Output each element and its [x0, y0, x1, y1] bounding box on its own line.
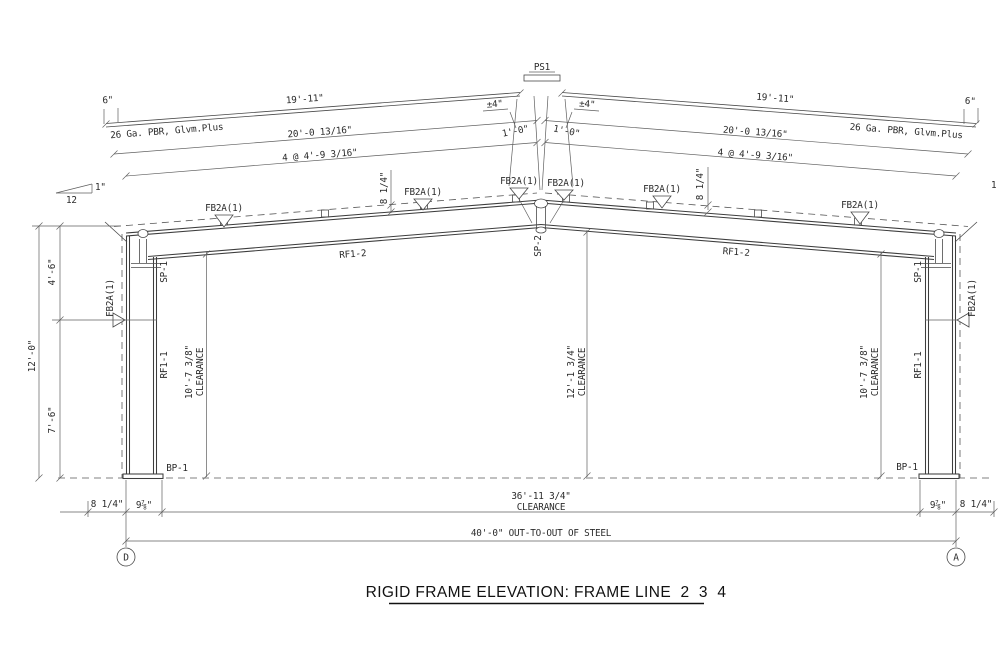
height-overall: 12'-0" — [27, 340, 38, 372]
left-column — [123, 236, 163, 479]
dashed-reference-lines — [58, 193, 992, 478]
roof-right-flange-brace-1: FB2A(1) — [643, 184, 681, 195]
right-wall-flange-brace: FB2A(1) — [967, 279, 978, 317]
bottom-right-offset: 8 1/4" — [960, 499, 992, 510]
slope-rise: 1" — [95, 182, 106, 193]
ridge-splice-label: SP-2 — [533, 235, 544, 257]
roof-left-rafter-label: RF1-2 — [339, 248, 367, 261]
bottom-left-offset: 8 1/4" — [91, 499, 123, 510]
ridge-splice — [535, 199, 548, 233]
roof-left-overhang: 6" — [102, 95, 114, 107]
bottom-clear-span: 36'-11 3/4" — [511, 491, 570, 502]
roof-left-purlin-depth: 8 1/4" — [379, 172, 390, 204]
slope-run: 12 — [66, 195, 77, 206]
roof-left-panel-note: 26 Ga. PBR, Glvm.Plus — [110, 122, 224, 141]
ridge-offset-right: ±4" — [579, 98, 596, 110]
roof-right-purlin-depth: 8 1/4" — [695, 168, 706, 200]
right-base-plate-label: BP-1 — [896, 462, 918, 473]
roof-right-rafter-label: RF1-2 — [722, 246, 750, 259]
left-column-member-label: RF1-1 — [159, 352, 170, 379]
height-upper: 4'-6" — [47, 259, 58, 286]
ridge-first-purlin-left: 1'-0" — [501, 123, 530, 139]
right-base-plate — [919, 474, 959, 479]
roof-right-purlin-spacing: 4 @ 4'-9 3/16" — [717, 147, 793, 164]
bottom-left-plate: 9⅞" — [136, 500, 152, 511]
right-column — [919, 236, 959, 479]
grid-letter-right: A — [953, 553, 959, 564]
roof-right-flange-brace-2: FB2A(1) — [841, 200, 879, 211]
ridge-panel-strip — [524, 75, 560, 81]
roof-left-flange-brace-2: FB2A(1) — [404, 187, 442, 198]
roof-right-panel-length: 19'-11" — [756, 92, 794, 106]
dimension-lines — [32, 72, 998, 547]
left-wall-flange-brace: FB2A(1) — [105, 279, 116, 317]
ridge-first-purlin-right: 1'-0" — [552, 123, 581, 139]
ridge-offset-left: ±4" — [486, 98, 503, 110]
roof-right-overhang: 6" — [964, 96, 976, 108]
left-column-splice-label: SP-1 — [159, 261, 170, 283]
roof-left-panel-length: 19'-11" — [286, 93, 324, 107]
ridge-flange-brace-right: FB2A(1) — [547, 178, 585, 189]
height-lower: 7'-6" — [47, 407, 58, 434]
left-base-plate-label: BP-1 — [166, 463, 188, 474]
grid-letter-left: D — [123, 553, 129, 564]
right-eave-detail — [921, 222, 977, 268]
edge-fragment: 1 — [991, 180, 996, 191]
bottom-out-to-out: 40'-0" OUT-TO-OUT OF STEEL — [471, 528, 612, 539]
labels: PS1 ±4" ±4" 1'-0" 1'-0" FB2A(1) FB2A(1) … — [27, 62, 996, 604]
rigid-frame-elevation-drawing: PS1 ±4" ±4" 1'-0" 1'-0" FB2A(1) FB2A(1) … — [0, 0, 1000, 668]
left-eave-detail — [105, 222, 161, 268]
grid-bubbles — [117, 548, 965, 566]
dimension-ticks — [36, 90, 998, 545]
left-base-plate — [123, 474, 163, 479]
roof-right-rafter-length: 20'-0 13/16" — [722, 125, 787, 141]
roof-panels — [106, 75, 976, 127]
bottom-clear-span-word: CLEARANCE — [517, 502, 566, 513]
slope-symbol — [56, 184, 92, 193]
ridge-panel-strip-label: PS1 — [534, 62, 550, 73]
right-clearance-word: CLEARANCE — [870, 348, 881, 397]
right-clearance-dim: 10'-7 3/8" — [859, 345, 870, 399]
ridge-flange-brace-left: FB2A(1) — [500, 176, 538, 187]
roof-left-flange-brace-1: FB2A(1) — [205, 203, 243, 214]
right-column-member-label: RF1-1 — [913, 352, 924, 379]
drawing-title: RIGID FRAME ELEVATION: FRAME LINE 2 3 4 — [366, 584, 727, 601]
drawing-sheet: PS1 ±4" ±4" 1'-0" 1'-0" FB2A(1) FB2A(1) … — [0, 0, 1000, 668]
center-clearance-dim: 12'-1 3/4" — [566, 345, 577, 399]
roof-left-purlin-spacing: 4 @ 4'-9 3/16" — [282, 147, 358, 164]
left-clearance-dim: 10'-7 3/8" — [184, 345, 195, 399]
bottom-right-plate: 9⅞" — [930, 500, 946, 511]
center-clearance-word: CLEARANCE — [577, 348, 588, 397]
left-clearance-word: CLEARANCE — [195, 348, 206, 397]
right-column-splice-label: SP-1 — [913, 261, 924, 283]
